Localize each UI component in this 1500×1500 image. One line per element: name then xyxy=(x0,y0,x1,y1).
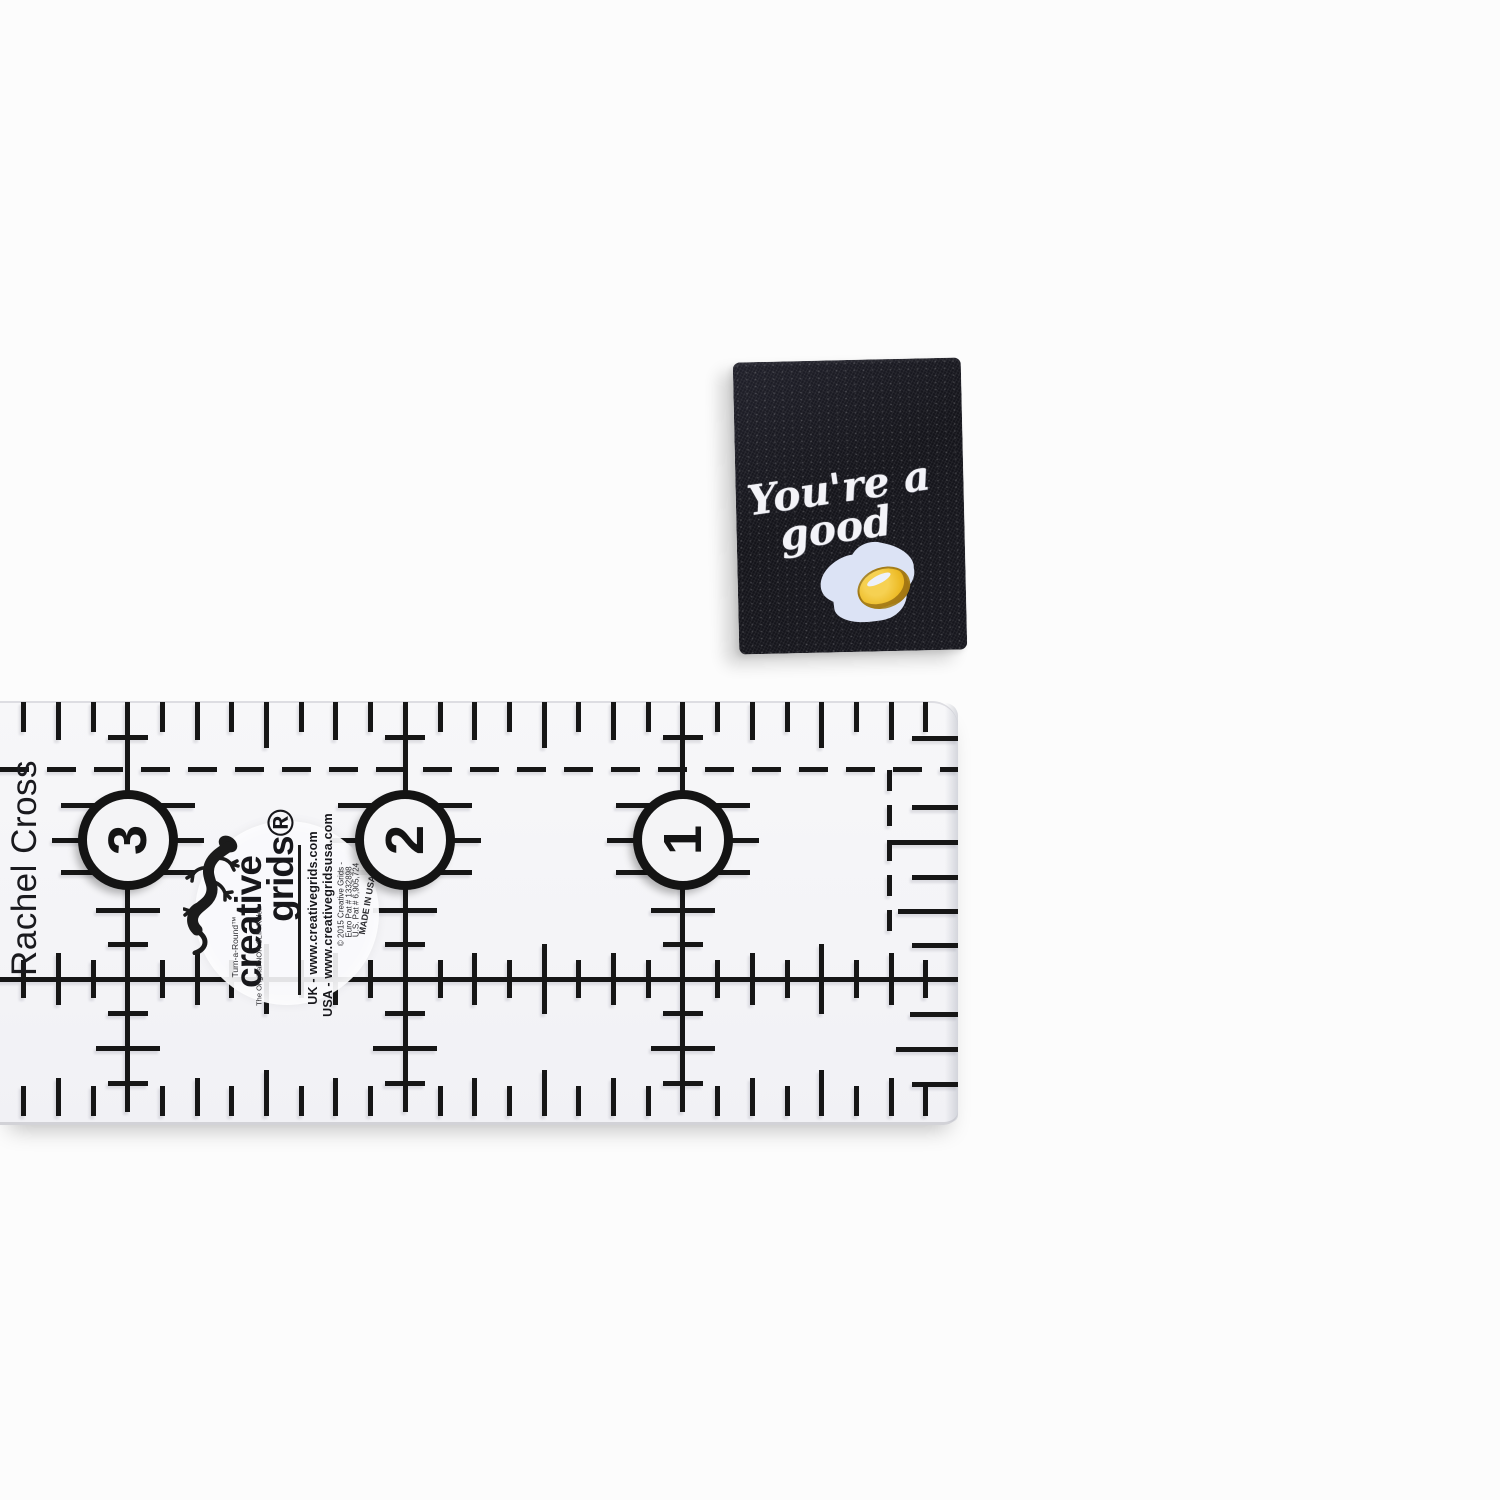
fried-egg-icon xyxy=(733,357,968,654)
product-photo-scene: You're a good Rachel Cross xyxy=(0,0,1500,1500)
quilting-ruler-body xyxy=(0,701,958,1125)
inch-number-1: 1 xyxy=(642,799,724,881)
inch-marker-circle-1: 1 xyxy=(633,790,733,890)
woven-label-tag: You're a good xyxy=(733,357,968,654)
creative-grids-logo-sticker xyxy=(195,821,379,1005)
inch-number-2: 2 xyxy=(364,799,446,881)
inch-marker-circle-3: 3 xyxy=(78,790,178,890)
ruler-owner-label: Rachel Cross xyxy=(5,760,45,976)
egg-yolk-highlight xyxy=(865,570,892,589)
inch-marker-circle-2: 2 xyxy=(355,790,455,890)
inch-number-3: 3 xyxy=(87,799,169,881)
